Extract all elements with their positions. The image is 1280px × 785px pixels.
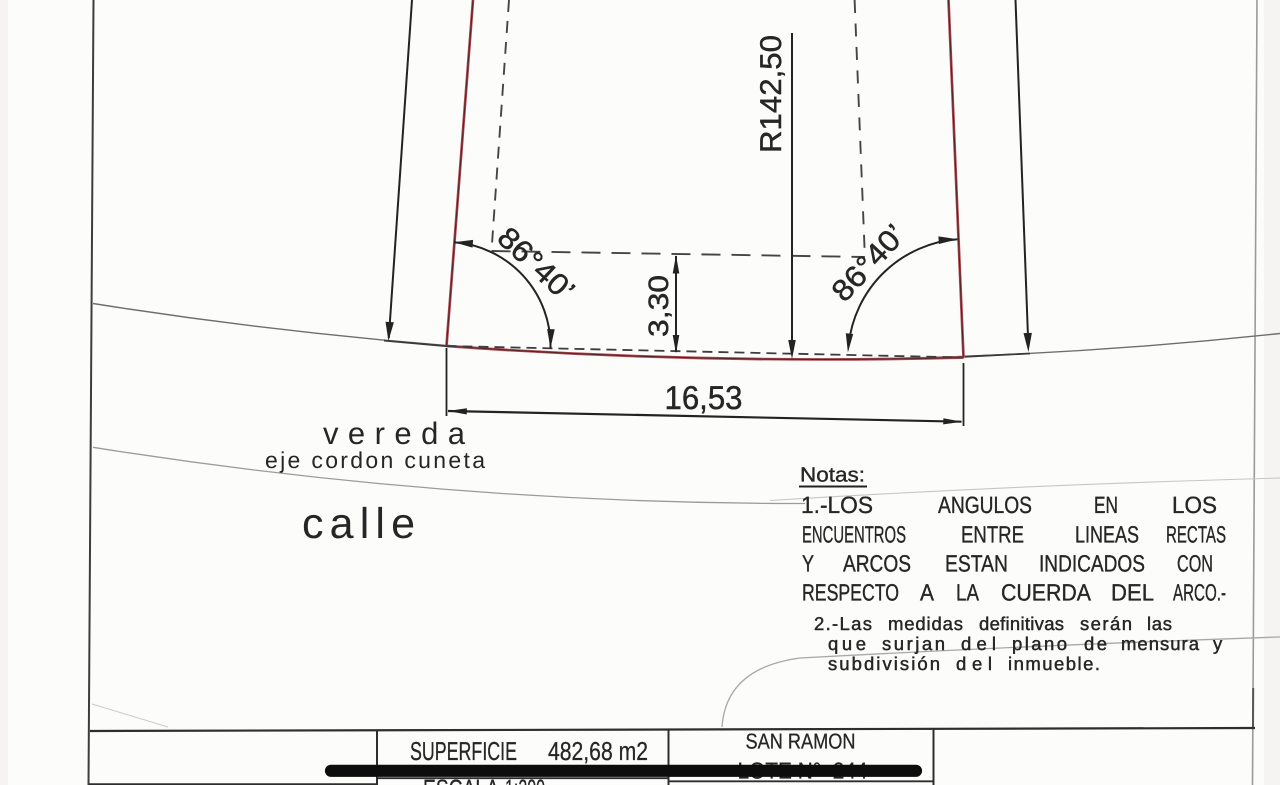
svg-text:CUERDA: CUERDA: [1001, 580, 1091, 606]
svg-text:16,53: 16,53: [665, 379, 743, 416]
svg-text:CON: CON: [1177, 551, 1213, 577]
svg-text:ARCO.-: ARCO.-: [1173, 580, 1226, 606]
svg-text:ENTRE: ENTRE: [961, 522, 1024, 548]
svg-text:3,30: 3,30: [643, 275, 674, 337]
svg-text:y: y: [1213, 633, 1223, 654]
svg-text:Notas:: Notas:: [800, 464, 865, 487]
svg-text:las: las: [1147, 613, 1172, 634]
svg-text:SAN RAMON: SAN RAMON: [746, 730, 856, 754]
svg-text:LINEAS: LINEAS: [1075, 522, 1139, 548]
svg-text:inmueble.: inmueble.: [1008, 653, 1100, 674]
svg-text:plano: plano: [1012, 633, 1067, 654]
svg-text:RESPECTO: RESPECTO: [802, 580, 899, 606]
svg-text:R142,50: R142,50: [755, 35, 788, 153]
svg-text:medidas: medidas: [888, 613, 963, 634]
svg-text:subdivisión: subdivisión: [828, 653, 940, 674]
svg-text:INDICADOS: INDICADOS: [1039, 551, 1145, 577]
svg-text:EN: EN: [1094, 492, 1118, 518]
svg-text:mensura: mensura: [1121, 633, 1200, 654]
svg-text:A: A: [920, 580, 934, 606]
svg-text:ANGULOS: ANGULOS: [938, 492, 1032, 518]
svg-text:Y: Y: [802, 551, 814, 577]
svg-text:que: que: [828, 633, 866, 654]
svg-text:2.-Las: 2.-Las: [814, 613, 872, 634]
svg-text:ENCUENTROS: ENCUENTROS: [802, 522, 906, 548]
svg-text:LOS: LOS: [1172, 492, 1217, 518]
svg-text:RECTAS: RECTAS: [1166, 522, 1226, 548]
svg-text:1.-LOS: 1.-LOS: [801, 492, 873, 518]
svg-text:eje cordon cuneta: eje cordon cuneta: [265, 447, 485, 473]
svg-text:ESTAN: ESTAN: [945, 551, 1008, 577]
svg-text:DEL: DEL: [1111, 580, 1154, 606]
svg-text:LA: LA: [956, 580, 979, 606]
svg-text:definitivas: definitivas: [979, 613, 1064, 634]
svg-text:ARCOS: ARCOS: [843, 551, 911, 577]
svg-text:serán: serán: [1080, 613, 1132, 634]
svg-text:482,68 m2: 482,68 m2: [548, 736, 648, 766]
svg-text:SUPERFICIE: SUPERFICIE: [410, 736, 517, 766]
